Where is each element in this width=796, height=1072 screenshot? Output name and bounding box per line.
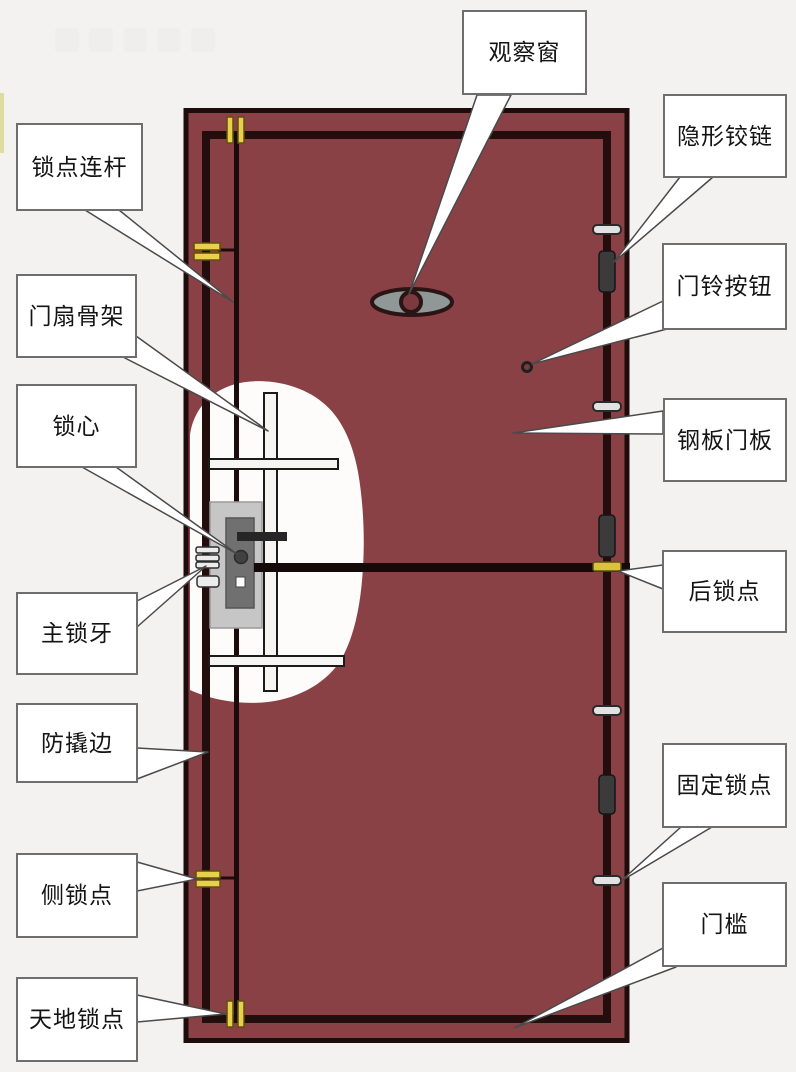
skeleton-rail-horizontal-top	[209, 459, 338, 469]
doorbell-button-icon	[523, 363, 532, 372]
lock-cylinder-core-icon	[235, 551, 248, 564]
security-door-diagram: 观察窗 隐形铰链 锁点连杆 门铃按钮 门扇骨架 钢板门板 锁心 后锁点 主锁牙 …	[0, 0, 796, 1072]
horizontal-lock-bar	[254, 563, 630, 572]
fixed-lock-point-pointer	[621, 827, 712, 881]
rear-lock-point-icon	[593, 562, 621, 571]
lock-cylinder-label: 锁心	[16, 384, 137, 468]
peephole-icon	[372, 289, 452, 315]
steel-door-panel-label: 钢板门板	[663, 398, 787, 482]
main-lock-bolt-label: 主锁牙	[16, 592, 138, 675]
anti-pry-edge-label: 防撬边	[16, 703, 138, 783]
watermark-smudge	[55, 28, 215, 52]
skeleton-rail-vertical	[264, 393, 277, 691]
door-leaf-frame-label: 门扇骨架	[16, 274, 137, 358]
edge-artifact	[0, 93, 4, 153]
door-sill-label: 门槛	[662, 882, 787, 967]
doorbell-button-label: 门铃按钮	[662, 243, 787, 330]
side-lock-point-label: 侧锁点	[16, 853, 138, 938]
hidden-hinge-label: 隐形铰链	[663, 94, 787, 178]
lock-keyhole	[236, 577, 245, 587]
lock-handle-bar	[237, 532, 287, 541]
main-lock-bolts-icon	[196, 547, 219, 587]
top-bottom-lock-point-label: 天地锁点	[16, 977, 138, 1062]
rear-lock-point-label: 后锁点	[662, 550, 787, 633]
observation-window-label: 观察窗	[462, 10, 587, 95]
skeleton-rail-horizontal-bottom	[209, 656, 344, 666]
fixed-lock-point-label: 固定锁点	[662, 743, 787, 828]
lock-point-rod-label: 锁点连杆	[16, 123, 143, 211]
